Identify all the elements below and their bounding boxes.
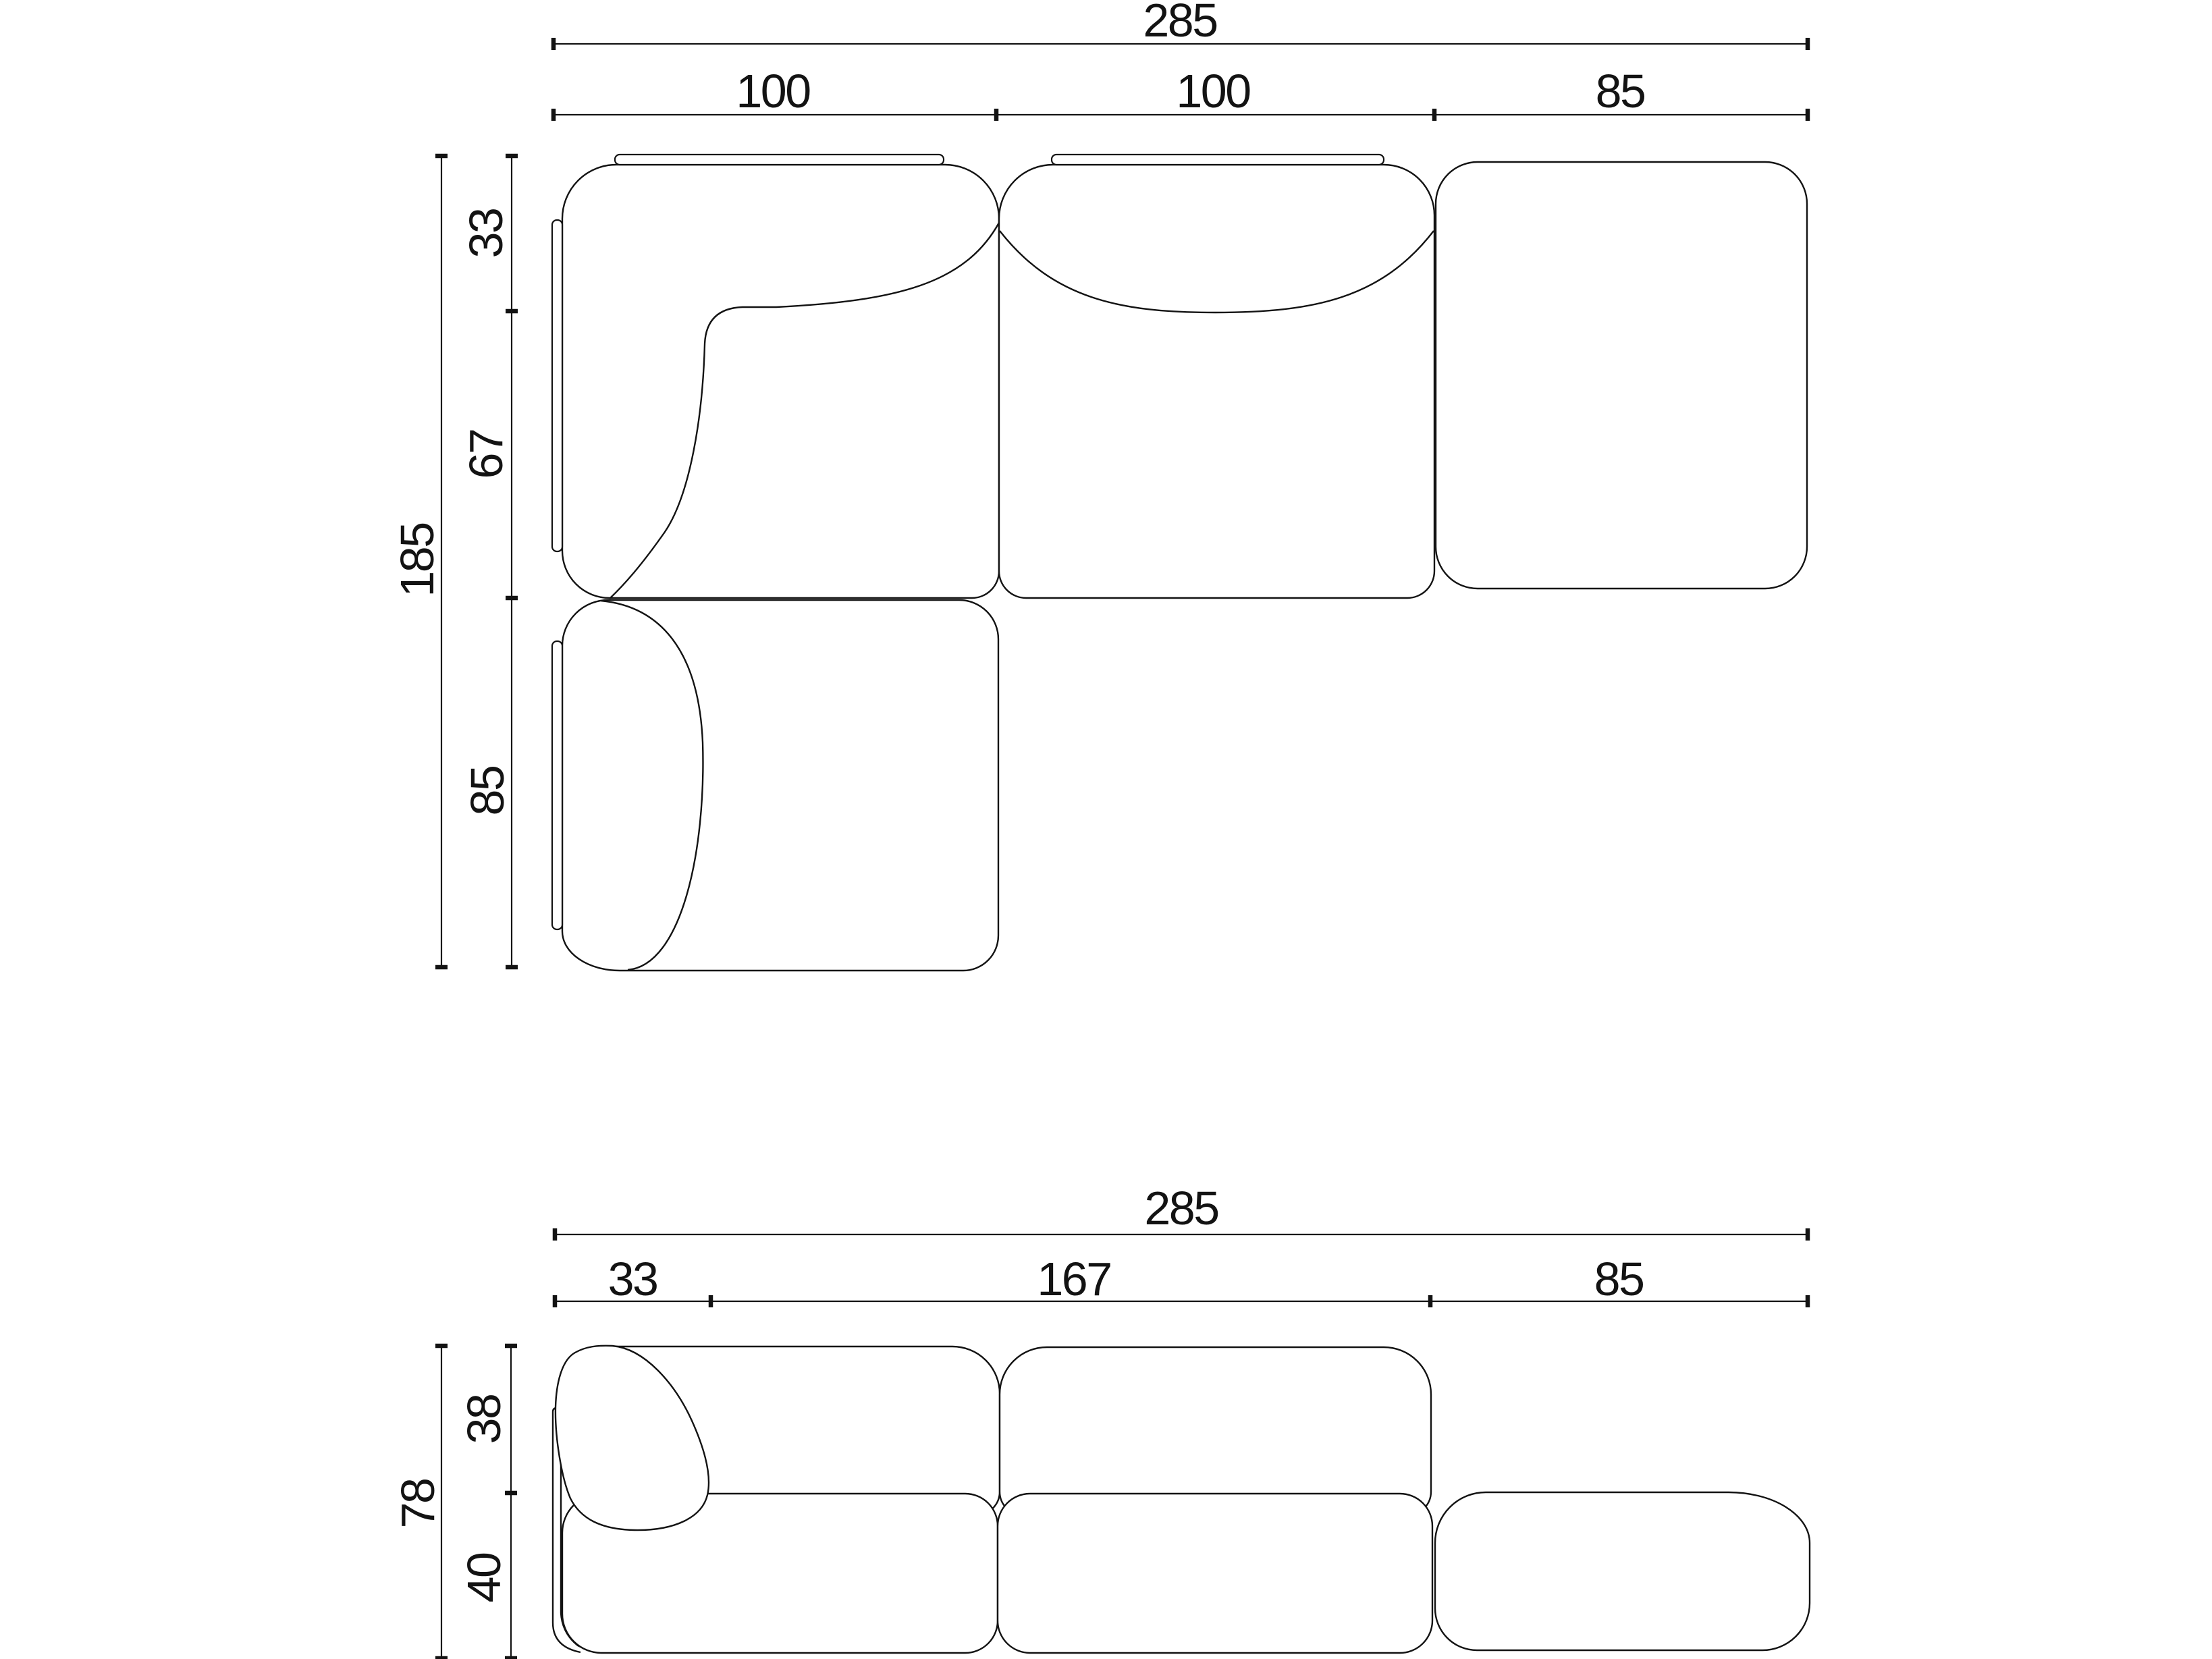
svg-text:38: 38	[458, 1395, 510, 1444]
svg-text:285: 285	[1143, 0, 1216, 47]
svg-text:85: 85	[1594, 1253, 1644, 1305]
svg-text:40: 40	[458, 1553, 510, 1602]
svg-text:100: 100	[736, 65, 810, 117]
svg-text:285: 285	[1144, 1182, 1218, 1234]
svg-text:33: 33	[460, 209, 512, 259]
svg-text:167: 167	[1037, 1253, 1110, 1305]
svg-text:33: 33	[608, 1253, 657, 1305]
svg-text:185: 185	[391, 523, 443, 597]
svg-text:78: 78	[392, 1479, 444, 1529]
svg-text:85: 85	[461, 767, 514, 816]
svg-text:100: 100	[1176, 65, 1250, 117]
svg-text:85: 85	[1596, 65, 1645, 117]
svg-text:67: 67	[460, 430, 512, 479]
